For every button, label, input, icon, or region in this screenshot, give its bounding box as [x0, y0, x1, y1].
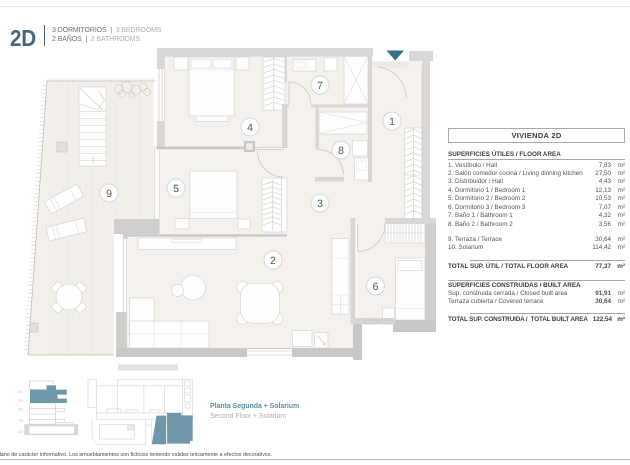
svg-text:5: 5 — [173, 183, 179, 195]
svg-text:2: 2 — [270, 255, 276, 267]
svg-text:4: 4 — [247, 122, 253, 134]
svg-text:7: 7 — [317, 80, 323, 92]
svg-text:P1: P1 — [19, 407, 23, 411]
svg-text:AT.: AT. — [18, 390, 23, 394]
svg-text:P2: P2 — [19, 399, 23, 403]
svg-text:8: 8 — [338, 145, 344, 157]
svg-text:P0: P0 — [19, 419, 23, 423]
svg-text:LO: LO — [18, 430, 23, 434]
svg-text:1: 1 — [389, 116, 395, 128]
svg-text:3: 3 — [317, 198, 323, 210]
svg-text:9: 9 — [106, 188, 112, 200]
svg-text:6: 6 — [373, 281, 379, 293]
